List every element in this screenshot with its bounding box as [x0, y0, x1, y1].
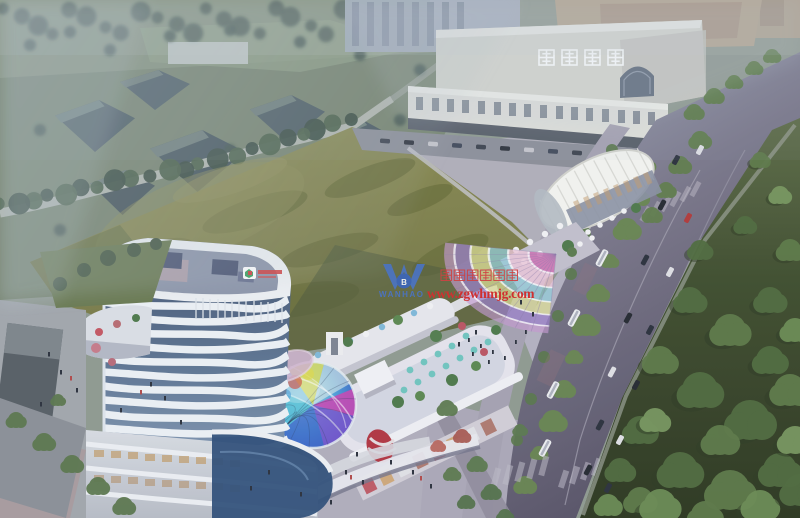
svg-text:WANHAO: WANHAO — [379, 290, 424, 299]
svg-text:www.zgwhmjg.com: www.zgwhmjg.com — [427, 286, 535, 301]
svg-text:B: B — [401, 278, 407, 287]
